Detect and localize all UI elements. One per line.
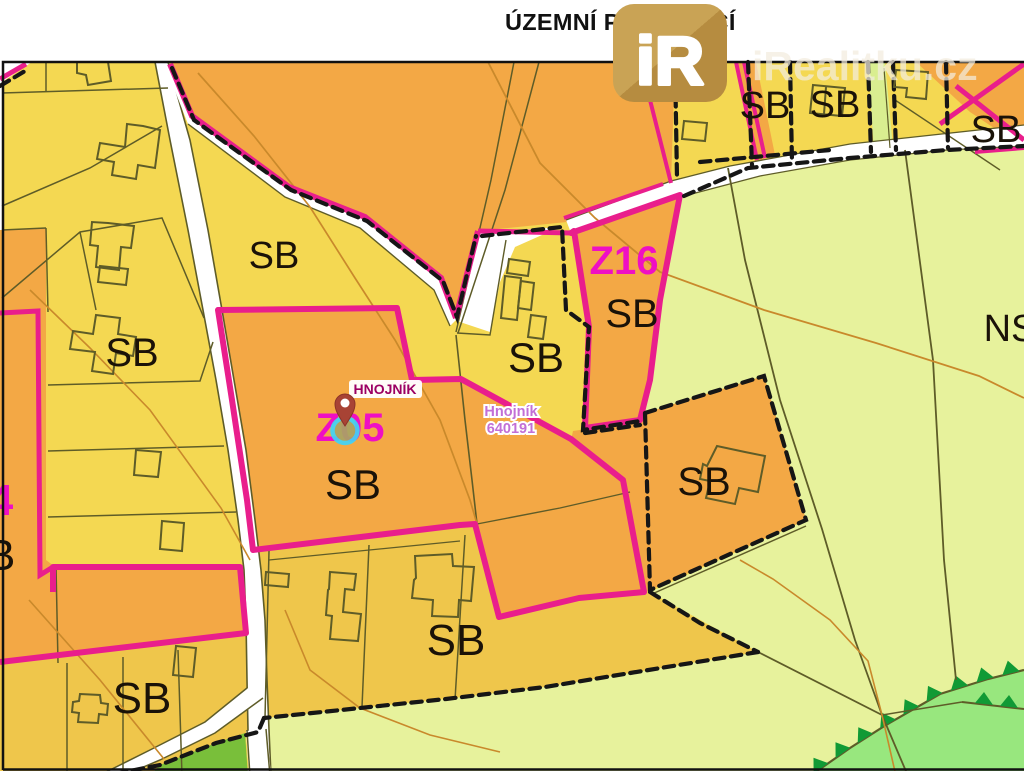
svg-text:SB: SB	[605, 292, 658, 336]
svg-text:SB: SB	[105, 331, 158, 375]
svg-text:iR: iR	[636, 23, 704, 99]
svg-text:SB: SB	[249, 235, 300, 277]
svg-text:NS: NS	[984, 308, 1024, 350]
svg-text:HNOJNÍK: HNOJNÍK	[353, 381, 416, 397]
svg-text:640191: 640191	[487, 421, 535, 437]
svg-text:SB: SB	[810, 84, 861, 126]
svg-text:SB: SB	[325, 461, 381, 508]
svg-text:Hnojník: Hnojník	[484, 404, 538, 420]
svg-text:SB: SB	[113, 674, 172, 723]
svg-text:SB: SB	[677, 460, 730, 504]
svg-text:Z16: Z16	[590, 239, 659, 283]
svg-text:SB: SB	[971, 109, 1022, 151]
svg-text:SB: SB	[740, 85, 791, 127]
svg-text:iRealitku.cz: iRealitku.cz	[752, 43, 978, 89]
svg-text:SB: SB	[427, 616, 486, 665]
svg-text:SB: SB	[508, 334, 564, 381]
